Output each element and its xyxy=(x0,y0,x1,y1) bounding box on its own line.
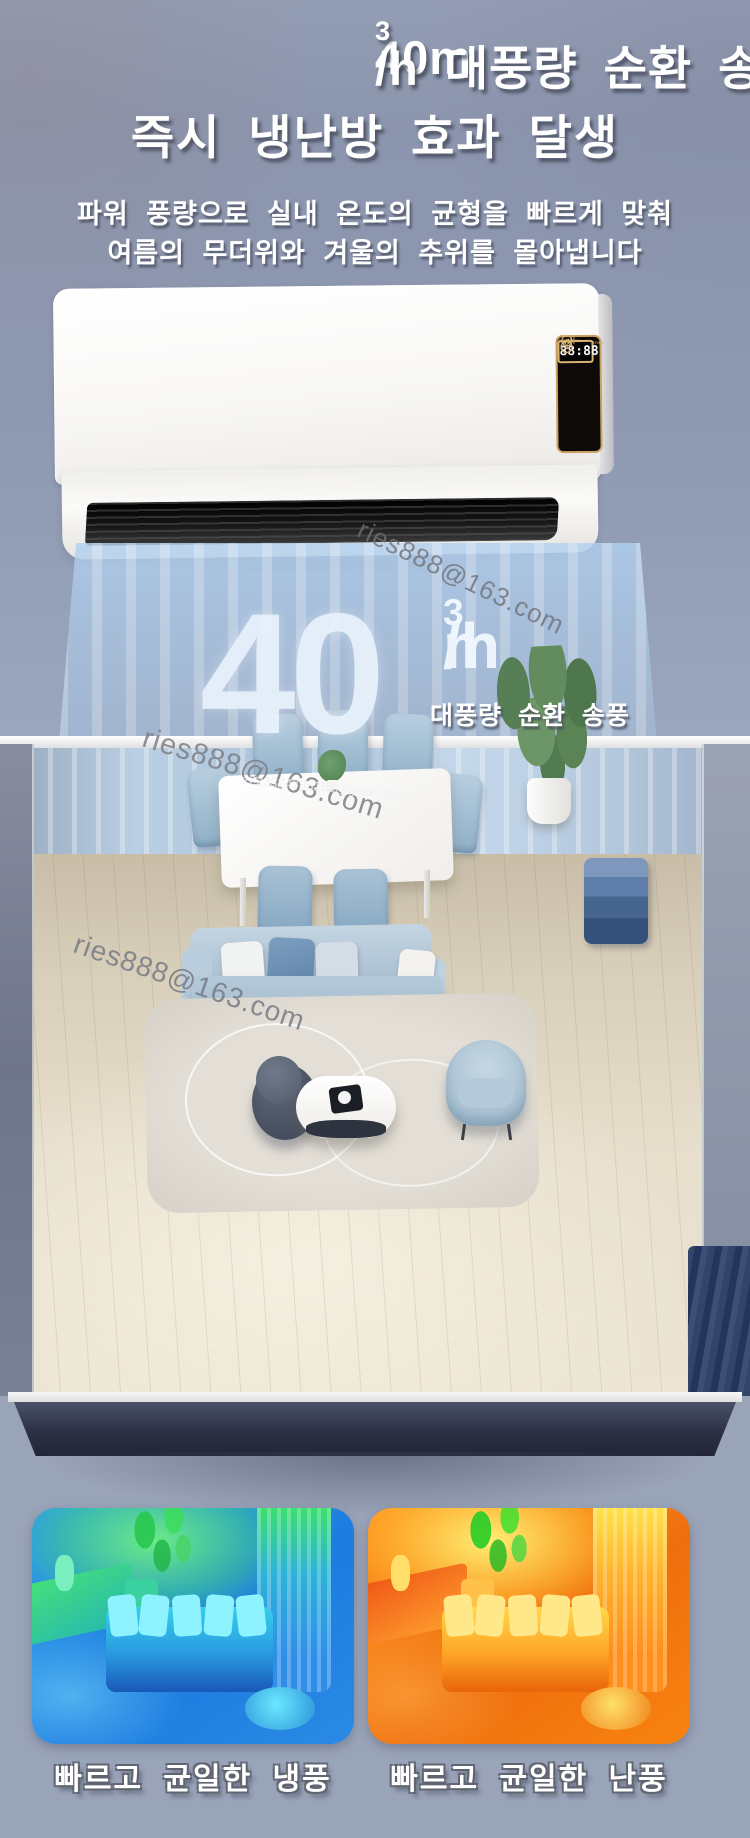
title-line-2: 즉시 냉난방 효과 달생 xyxy=(0,99,750,168)
folded-blankets xyxy=(584,858,648,944)
thermal-vase xyxy=(391,1555,410,1590)
coffee-table-base xyxy=(306,1120,386,1138)
potted-plant-pot xyxy=(527,778,571,824)
subtitle-line-2: 여름의 무더위와 겨울의 추위를 몰아냅니다 xyxy=(0,231,750,270)
room-left-wall xyxy=(0,744,34,1396)
armchair-seat xyxy=(458,1078,514,1108)
subtitle-line-1: 파워 풍량으로 실내 온도의 균형을 빠르게 맞춰 xyxy=(0,192,750,231)
platform-rim xyxy=(8,1392,742,1402)
thermal-vase xyxy=(55,1555,74,1590)
cooling-caption: 빠르고 균일한 냉풍 xyxy=(32,1754,354,1798)
heating-caption: 빠르고 균일한 난풍 xyxy=(368,1754,690,1798)
thermal-image-heating xyxy=(368,1508,690,1744)
round-side-table-top xyxy=(256,1056,302,1104)
airflow-caption: 대풍량 순환 송풍 xyxy=(430,696,630,732)
ac-control-panel: Power Cold&Warm Timing 88:88 − + % TIMER… xyxy=(555,335,602,453)
airflow-value: 40 xyxy=(200,588,379,760)
title-line-1-text: /h 대풍량 순환 송풍 xyxy=(375,30,750,99)
product-ad-page: 40m3/h 대풍량 순환 송풍 즉시 냉난방 효과 달생 파워 풍량으로 실내… xyxy=(0,0,750,1838)
table-leg xyxy=(424,870,430,918)
thermal-sofa xyxy=(106,1607,273,1692)
tray-cup xyxy=(338,1091,351,1104)
thermal-image-cooling xyxy=(32,1508,354,1744)
thermal-coffee-table xyxy=(581,1687,652,1729)
ac-unit-body xyxy=(53,283,601,485)
power-button-label: ON/OFF xyxy=(558,339,571,343)
platform-front xyxy=(14,1402,736,1456)
right-curtain-textile xyxy=(688,1246,750,1396)
table-leg xyxy=(240,878,246,926)
thermal-coffee-table xyxy=(245,1687,316,1729)
ac-air-vent xyxy=(85,497,559,546)
thermal-sofa xyxy=(442,1607,609,1692)
